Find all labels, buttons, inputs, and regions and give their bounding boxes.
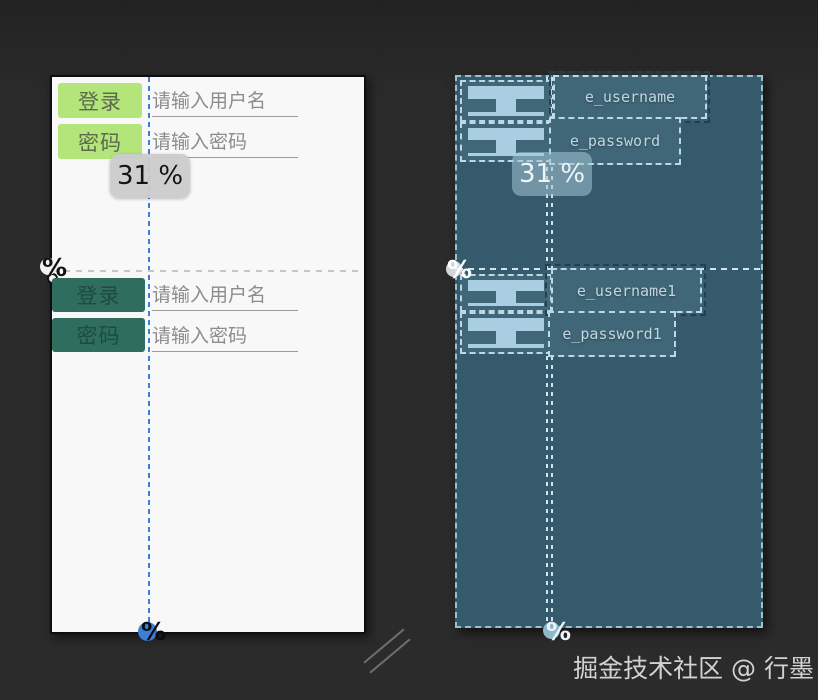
design-view-panel: 登录 请输入用户名 密码 请输入密码 31 % 登录 请输入用户名 密码 请输入… xyxy=(50,75,366,634)
button-text-blocks xyxy=(468,318,544,348)
glyph-bar xyxy=(468,128,544,140)
blueprint-view-panel: e_username e_password 31 % e_username1 e… xyxy=(455,75,763,628)
glyph-stem xyxy=(496,140,516,152)
username-edittext-wireframe-bottom[interactable]: e_username1 xyxy=(551,268,702,313)
percent-icon: % xyxy=(141,619,166,644)
glyph-bar xyxy=(468,344,544,348)
percent-guideline-handle-left-design[interactable]: % xyxy=(40,255,70,285)
password-edittext-wireframe-bottom[interactable]: e_password1 xyxy=(548,311,676,357)
percent-icon: % xyxy=(546,619,571,644)
guideline-percent-tooltip-design: 31 % xyxy=(110,154,190,198)
percent-guideline-handle-bottom-design[interactable]: % xyxy=(136,618,166,648)
username-edittext-wireframe-top[interactable]: e_username xyxy=(553,75,707,119)
password-input-bottom[interactable]: 请输入密码 xyxy=(152,321,298,352)
percent-guideline-handle-bottom-blueprint[interactable]: % xyxy=(541,618,571,648)
glyph-bar xyxy=(468,318,544,331)
glyph-stem xyxy=(496,99,516,112)
glyph-bar xyxy=(468,112,544,116)
glyph-bar xyxy=(468,86,544,99)
username-input-top[interactable]: 请输入用户名 xyxy=(152,86,298,117)
password-button-wireframe-bottom[interactable] xyxy=(460,312,552,354)
percent-icon: % xyxy=(42,255,67,280)
watermark-text: 掘金技术社区 @ 行墨 xyxy=(552,649,814,683)
guideline-percent-tooltip-blueprint: 31 % xyxy=(512,152,592,196)
glyph-stem xyxy=(496,331,516,344)
percent-icon: % xyxy=(447,257,472,282)
button-text-blocks xyxy=(468,280,544,306)
resize-handle-line xyxy=(369,639,410,674)
horizontal-guideline-design[interactable] xyxy=(52,270,364,272)
percent-guideline-handle-left-blueprint[interactable]: % xyxy=(445,257,475,287)
password-button-bottom[interactable]: 密码 xyxy=(52,318,145,352)
button-text-blocks xyxy=(468,86,544,116)
glyph-stem xyxy=(496,291,516,302)
glyph-bar xyxy=(468,303,544,306)
resize-handle-icon[interactable] xyxy=(356,627,408,669)
login-button-top[interactable]: 登录 xyxy=(58,83,142,118)
login-button-wireframe-top[interactable] xyxy=(460,80,552,122)
glyph-bar xyxy=(468,280,544,291)
username-input-bottom[interactable]: 请输入用户名 xyxy=(152,280,298,311)
